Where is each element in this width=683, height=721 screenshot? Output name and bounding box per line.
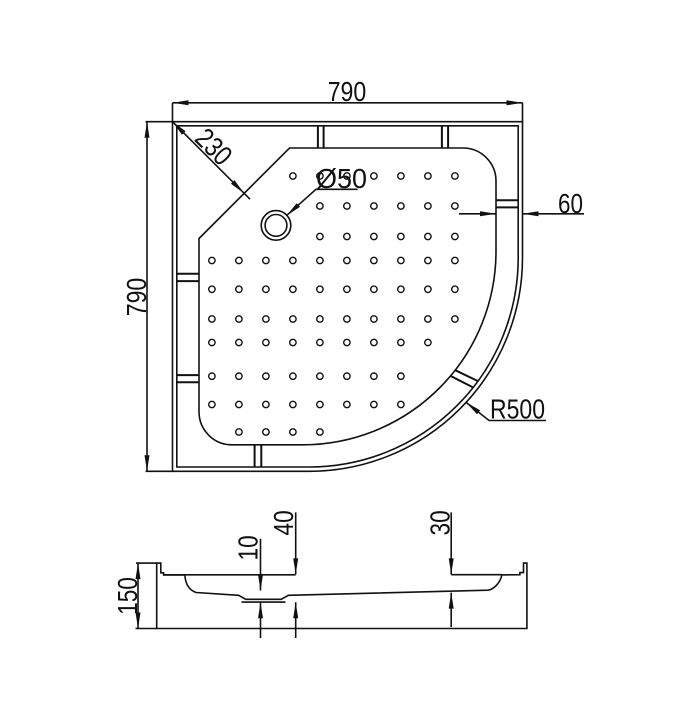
- svg-text:150: 150: [112, 577, 143, 615]
- svg-text:30: 30: [425, 510, 456, 535]
- svg-text:60: 60: [558, 188, 583, 219]
- svg-text:10: 10: [233, 535, 264, 560]
- svg-text:R500: R500: [490, 394, 545, 425]
- svg-text:790: 790: [328, 76, 367, 107]
- svg-text:790: 790: [121, 278, 152, 317]
- svg-text:40: 40: [268, 510, 299, 535]
- svg-text:Ø50: Ø50: [316, 163, 367, 194]
- svg-text:230: 230: [189, 122, 238, 171]
